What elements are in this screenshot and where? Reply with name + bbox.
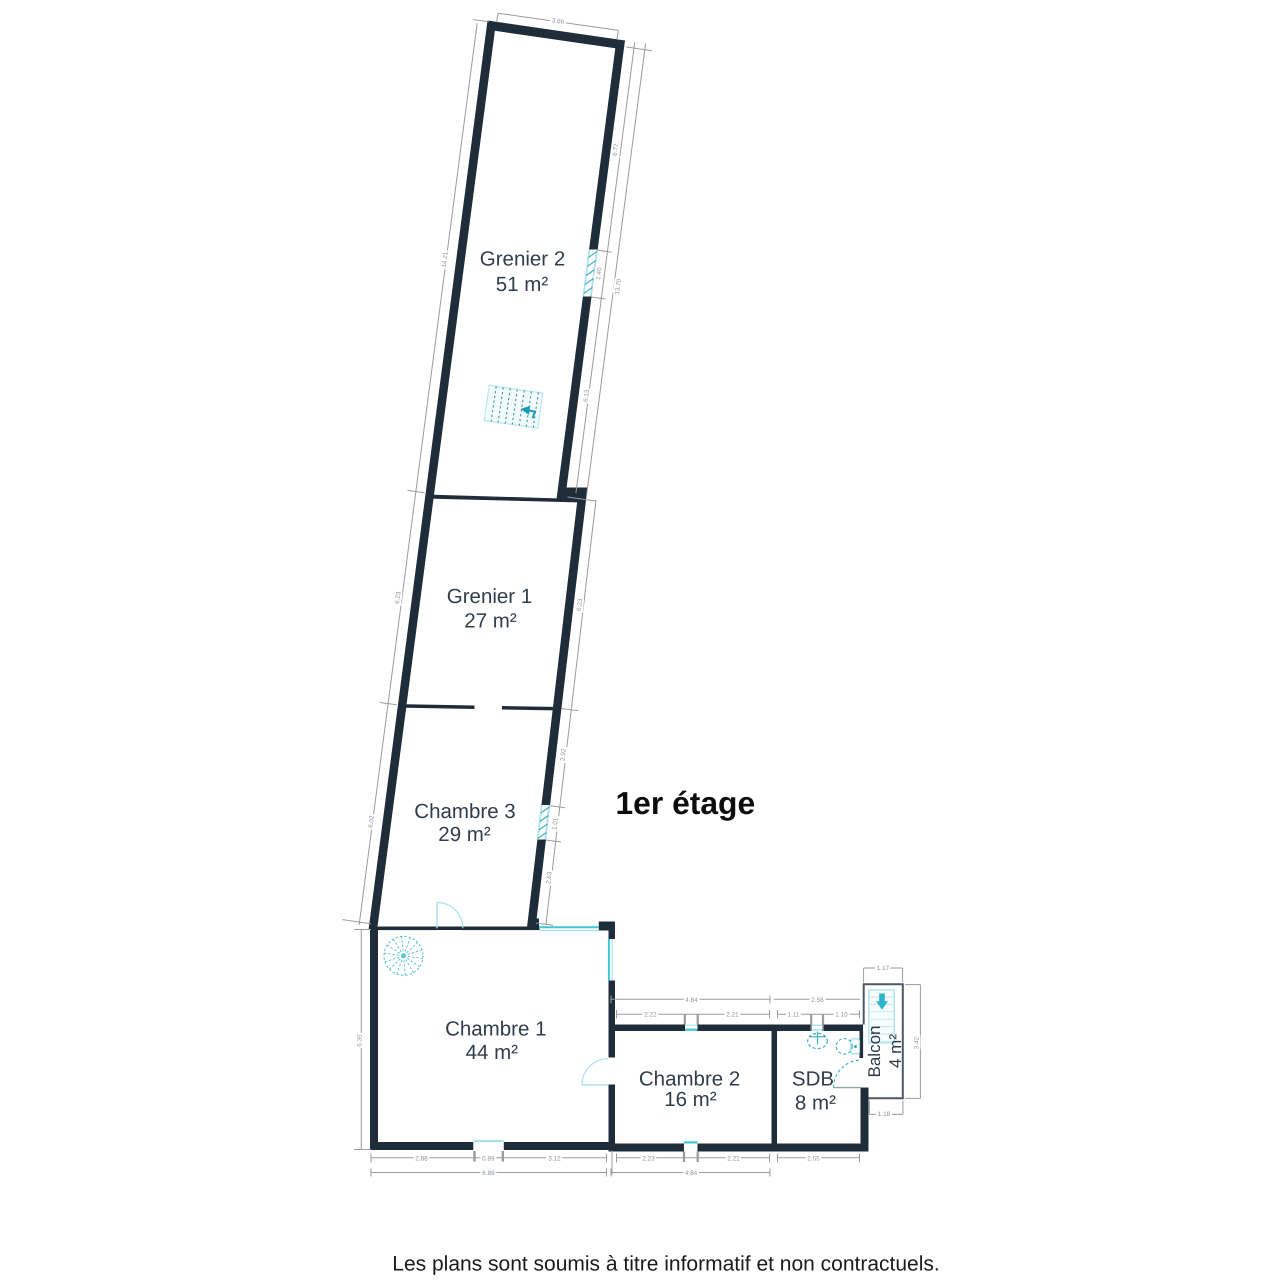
svg-text:2.55: 2.55 (807, 1155, 820, 1162)
svg-text:2.63: 2.63 (545, 871, 553, 885)
svg-text:1.01: 1.01 (551, 817, 559, 831)
svg-text:2.21: 2.21 (726, 1012, 739, 1019)
svg-text:16 m²: 16 m² (664, 1088, 717, 1111)
svg-text:8 m²: 8 m² (795, 1092, 836, 1115)
svg-text:29 m²: 29 m² (438, 823, 491, 846)
svg-text:44 m²: 44 m² (466, 1041, 519, 1064)
svg-text:Les plans sont soumis à titre: Les plans sont soumis à titre informatif… (392, 1253, 939, 1276)
svg-text:6.23: 6.23 (576, 598, 584, 612)
svg-text:Chambre 2: Chambre 2 (639, 1067, 740, 1090)
svg-text:4.84: 4.84 (685, 1170, 698, 1177)
svg-text:Chambre 3: Chambre 3 (414, 800, 515, 823)
svg-text:1.18: 1.18 (878, 1111, 891, 1118)
svg-text:4 m²: 4 m² (886, 1034, 905, 1068)
svg-text:2.21: 2.21 (727, 1155, 740, 1162)
svg-text:Grenier 1: Grenier 1 (447, 585, 532, 608)
svg-text:2.22: 2.22 (644, 1012, 657, 1019)
svg-text:1.17: 1.17 (877, 965, 890, 972)
svg-text:Grenier 2: Grenier 2 (480, 248, 565, 271)
svg-text:0.89: 0.89 (482, 1155, 495, 1162)
svg-text:27 m²: 27 m² (464, 610, 517, 633)
svg-text:Chambre 1: Chambre 1 (445, 1017, 546, 1040)
svg-text:4.84: 4.84 (685, 997, 698, 1004)
svg-text:Balcon: Balcon (865, 1026, 884, 1078)
svg-text:1er étage: 1er étage (616, 785, 756, 821)
svg-text:2.56: 2.56 (811, 997, 824, 1004)
svg-text:3.42: 3.42 (914, 1036, 921, 1049)
svg-text:6.36: 6.36 (357, 1034, 364, 1047)
svg-text:3.12: 3.12 (548, 1155, 561, 1162)
svg-text:2.23: 2.23 (642, 1155, 655, 1162)
svg-text:1.11: 1.11 (788, 1012, 800, 1019)
svg-text:SDB: SDB (792, 1068, 834, 1091)
svg-text:2.88: 2.88 (415, 1155, 428, 1162)
svg-text:6.89: 6.89 (482, 1170, 495, 1177)
svg-text:2.92: 2.92 (559, 748, 567, 762)
svg-text:51 m²: 51 m² (496, 273, 549, 296)
svg-text:1.10: 1.10 (835, 1012, 848, 1019)
